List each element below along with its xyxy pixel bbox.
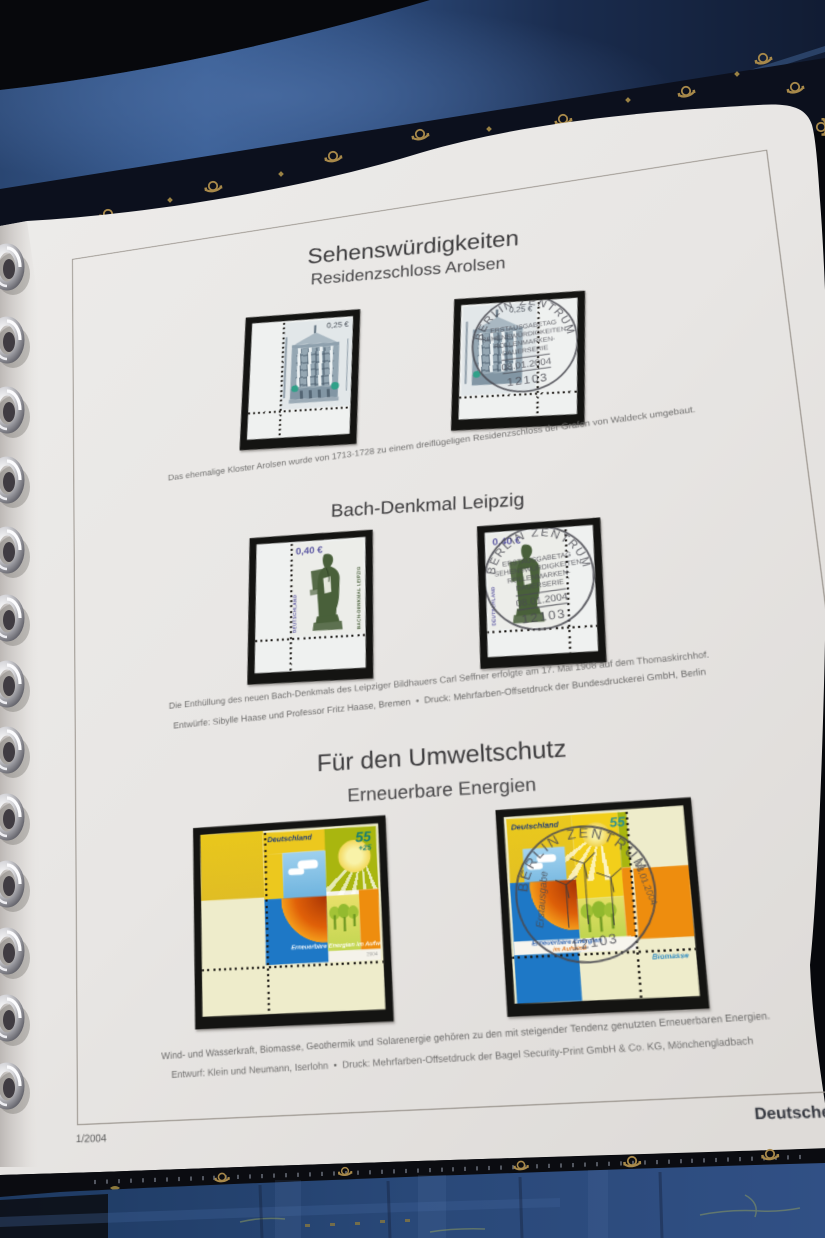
svg-text:12103: 12103	[570, 932, 620, 954]
svg-text:Erstausgabe: Erstausgabe	[534, 870, 550, 929]
svg-text:BERLIN ZENTRUM: BERLIN ZENTRUM	[506, 816, 651, 896]
